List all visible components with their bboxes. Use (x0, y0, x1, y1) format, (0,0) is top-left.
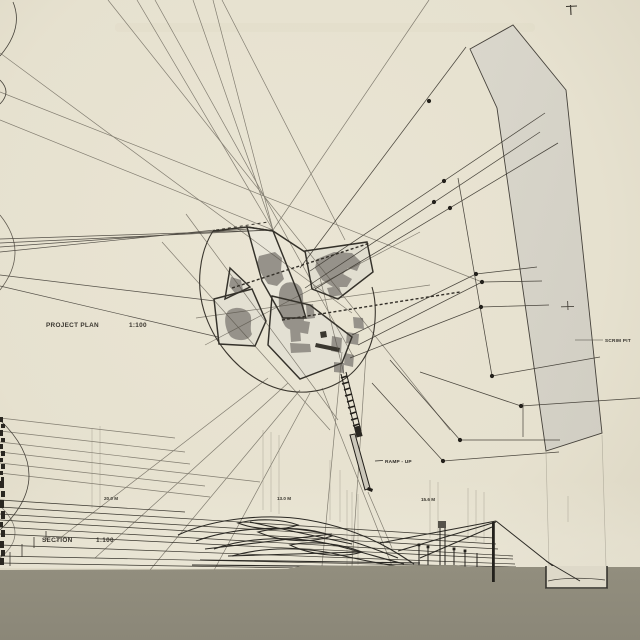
svg-text:RAMP - UP: RAMP - UP (385, 459, 412, 465)
svg-text:SCRIM PIT: SCRIM PIT (605, 338, 631, 343)
svg-text:15.6 M: 15.6 M (421, 497, 435, 502)
svg-text:SECTION: SECTION (42, 537, 73, 544)
svg-text:PROJECT PLAN: PROJECT PLAN (46, 322, 99, 329)
svg-text:1:100: 1:100 (96, 537, 114, 544)
svg-text:13.0 M: 13.0 M (277, 496, 291, 501)
svg-text:20.0 M: 20.0 M (104, 496, 118, 501)
svg-text:1:100: 1:100 (129, 322, 147, 329)
